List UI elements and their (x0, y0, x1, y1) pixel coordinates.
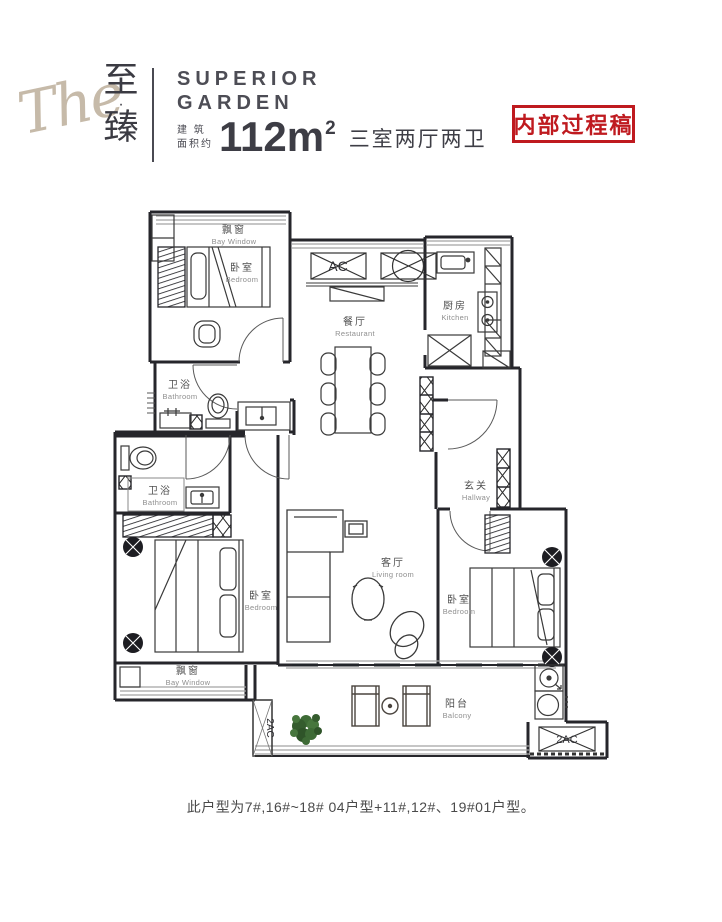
room-label-bathroom-lower: 卫浴Bathroom (143, 482, 178, 507)
brand-title: SUPERIOR GARDEN (177, 68, 321, 115)
room-label-bay-window-bottom: 飘窗Bay Window (166, 662, 211, 687)
area-prefix: 建 筑 面积约 (177, 124, 213, 152)
toilet-lower (130, 447, 156, 469)
unit-applicability-note: 此户型为7#,16#~18# 04户型+11#,12#、19#01户型。 (0, 797, 722, 817)
stamp-text: 内部过程稿 (514, 108, 634, 140)
plant (290, 714, 322, 745)
room-label-bedroom-top-left: 卧室Bedroom (226, 259, 259, 284)
area-value: 112m2 (219, 118, 335, 156)
room-label-restaurant: 餐厅Restaurant (335, 313, 375, 338)
ac2-right-box: 2AC (530, 727, 605, 754)
brand-line2: GARDEN (177, 92, 321, 116)
internal-draft-stamp: 内部过程稿 (512, 105, 635, 143)
ac2-right-label: 2AC (556, 734, 577, 746)
room-label-bathroom-upper: 卫浴Bathroom (163, 376, 198, 401)
wardrobe-hallway (485, 515, 510, 553)
logo-divider (152, 68, 154, 162)
kitchen-fixtures (428, 248, 510, 368)
room-label-bedroom-bottom-right: 卧室Bedroom (443, 591, 476, 616)
room-label-living-room: 客厅Living room (372, 554, 414, 579)
room-label-bedroom-bottom-left: 卧室Bedroom (245, 587, 278, 612)
room-layout-text: 三室两厅两卫 (349, 123, 487, 153)
ac2-left-box: 2AC (253, 700, 275, 756)
floorplan: AC 2AC 2AC (106, 195, 616, 770)
room-label-hallway: 玄关Hallway (462, 477, 490, 502)
nightstand (123, 537, 143, 653)
kitchen-sink (437, 252, 474, 273)
lounge-chair (378, 605, 435, 663)
nightstand (542, 547, 562, 667)
bay-window-bottom-box (120, 667, 140, 687)
ac-box: AC (311, 253, 366, 279)
balcony-furniture (352, 686, 430, 726)
wardrobe-bedroom-top-left (158, 247, 185, 307)
floorplan-page: The 至 · 臻 SUPERIOR GARDEN 建 筑 面积约 112m2 … (0, 0, 722, 922)
ac2-left-label: 2AC (264, 718, 275, 737)
room-label-kitchen: 厨房Kitchen (441, 297, 468, 322)
ac-label: AC (328, 258, 347, 274)
brand-line1: SUPERIOR (177, 68, 321, 92)
area-superscript: 2 (325, 118, 336, 139)
armchair (352, 578, 384, 620)
logo-chinese: 至 · 臻 (100, 63, 142, 147)
dining-table-set (306, 283, 418, 435)
area-info: 建 筑 面积约 112m2 三室两厅两卫 (177, 118, 487, 156)
room-label-balcony: 阳台Balcony (443, 695, 472, 720)
ac-units: AC 2AC 2AC (253, 251, 605, 757)
wardrobe-bedroom-bottom-left (123, 515, 213, 537)
logo-cn-bottom: 臻 (103, 110, 138, 147)
room-label-bay-window-top: 飘窗Bay Window (212, 221, 257, 246)
bed-bottom-right (470, 547, 562, 667)
logo-cn-top: 至 (103, 63, 138, 100)
bed-bottom-left (123, 537, 243, 653)
ceiling-vent (381, 251, 436, 282)
laundry-appliances (535, 665, 568, 719)
sofa-set (287, 510, 435, 663)
